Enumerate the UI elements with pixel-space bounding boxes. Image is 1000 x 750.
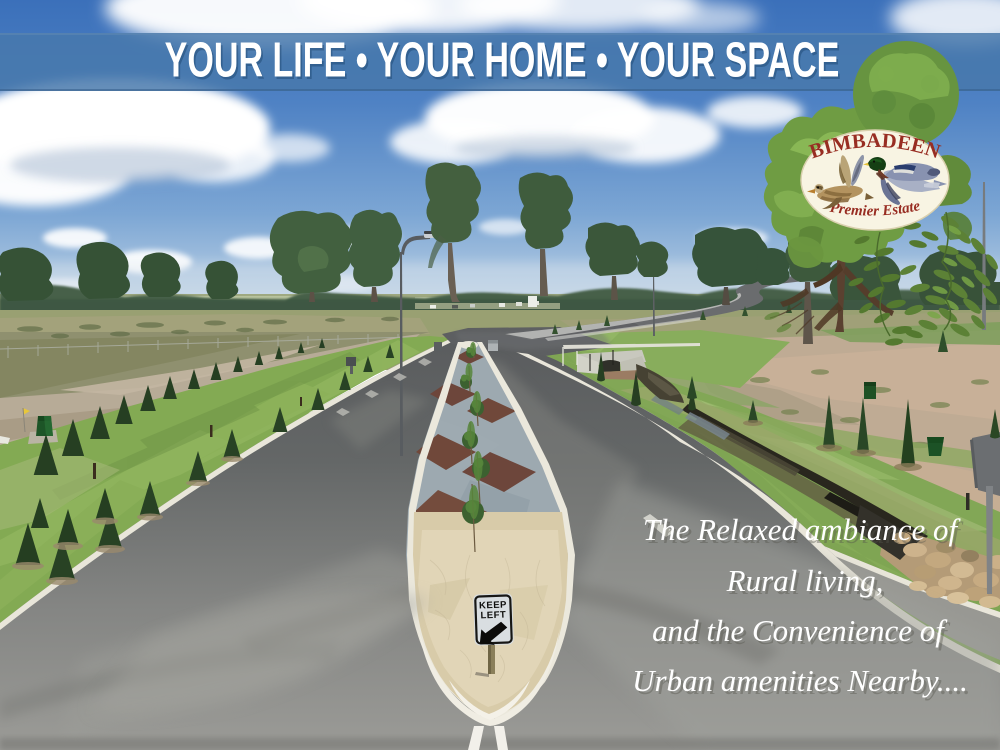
svg-text:YOUR LIFE • YOUR HOME • YOUR S: YOUR LIFE • YOUR HOME • YOUR SPACE bbox=[165, 32, 840, 87]
svg-text:Rural living,: Rural living, bbox=[726, 563, 884, 598]
svg-text:and the Convenience of: and the Convenience of bbox=[652, 613, 948, 648]
svg-text:Urban amenities Nearby....: Urban amenities Nearby.... bbox=[632, 663, 968, 698]
svg-text:LEFT: LEFT bbox=[480, 610, 506, 622]
svg-text:The Relaxed ambiance of: The Relaxed ambiance of bbox=[643, 512, 962, 547]
